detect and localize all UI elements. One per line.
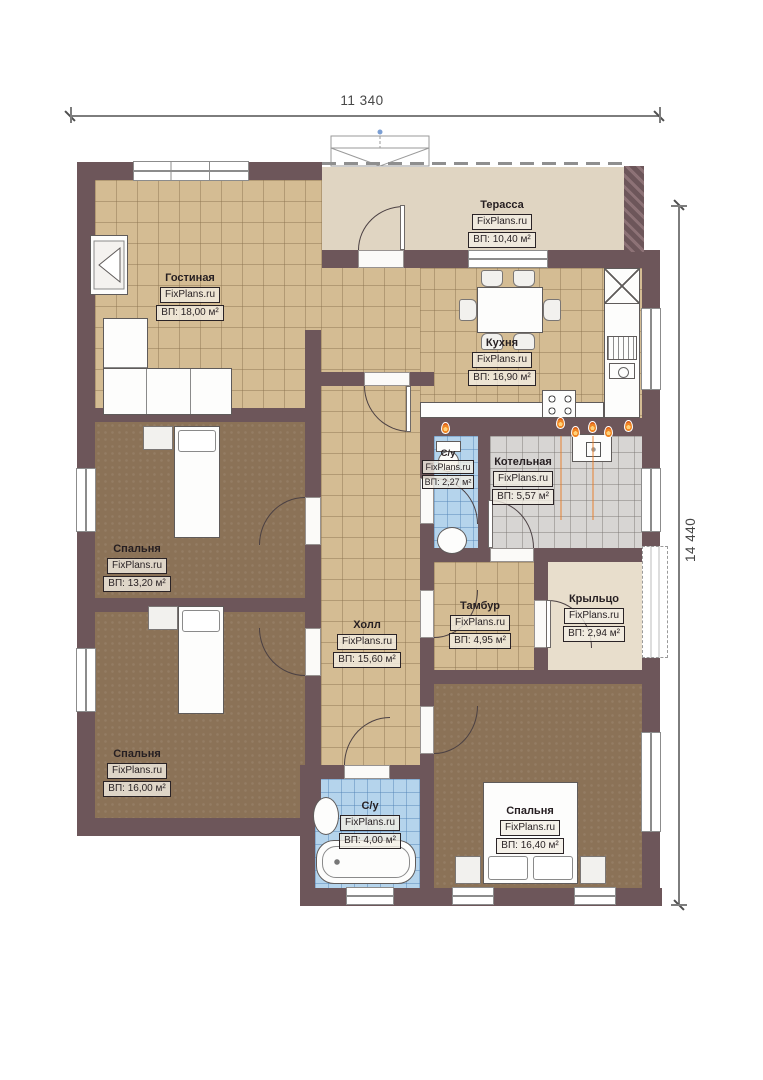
window <box>76 468 96 532</box>
brand-badge: FixPlans.ru <box>472 214 532 230</box>
stove <box>542 390 576 418</box>
wall-segment <box>534 548 642 562</box>
door-leaf <box>406 386 411 432</box>
doorway <box>420 590 434 638</box>
brand-badge: FixPlans.ru <box>493 471 553 487</box>
room-name: Гостиная <box>165 272 215 285</box>
wash-basin <box>437 527 467 554</box>
wall-segment <box>305 422 321 497</box>
wall-segment <box>77 818 315 836</box>
wall-segment <box>305 330 321 408</box>
room-name: Спальня <box>113 543 161 556</box>
room-label-bedroom2: Спальня FixPlans.ru ВП: 16,00 м² <box>98 748 176 797</box>
brand-badge: FixPlans.ru <box>340 815 400 831</box>
dimension-top-label: 11 340 <box>320 93 404 108</box>
pillow <box>182 610 220 632</box>
kitchen-counter <box>420 402 604 418</box>
gas-flame-icon <box>624 420 633 432</box>
brand-badge: FixPlans.ru <box>107 558 167 574</box>
room-area: ВП: 5,57 м² <box>492 489 554 505</box>
window <box>468 250 548 268</box>
gas-flame-icon <box>588 421 597 433</box>
wall-segment <box>534 562 548 600</box>
room-label-porch: Крыльцо FixPlans.ru ВП: 2,94 м² <box>558 593 630 642</box>
wall-segment <box>420 670 642 684</box>
room-label-terrace: Терасса FixPlans.ru ВП: 10,40 м² <box>460 199 544 248</box>
room-label-kitchen: Кухня FixPlans.ru ВП: 16,90 м² <box>460 337 544 386</box>
nightstand <box>148 606 178 630</box>
wall-segment <box>300 765 315 906</box>
vent-shaft <box>604 268 640 304</box>
room-area: ВП: 13,20 м² <box>103 576 170 592</box>
room-name: Котельная <box>494 456 552 469</box>
room-area: ВП: 16,00 м² <box>103 781 170 797</box>
room-area: ВП: 2,94 м² <box>563 626 625 642</box>
room-name: Крыльцо <box>569 593 619 606</box>
wall-segment <box>420 524 434 590</box>
room-name: Спальня <box>506 805 554 818</box>
gas-flame-icon <box>571 426 580 438</box>
gas-flame-icon <box>556 417 565 429</box>
fireplace <box>90 235 128 295</box>
window <box>133 161 249 181</box>
window <box>346 887 394 905</box>
room-name: Тамбур <box>460 600 500 613</box>
doorway <box>420 706 434 754</box>
brand-badge: FixPlans.ru <box>422 460 473 474</box>
room-name: С/у <box>361 800 378 813</box>
dimension-line-top <box>70 115 660 117</box>
doorway <box>358 250 404 268</box>
pillow <box>488 856 528 880</box>
doorway <box>364 372 410 386</box>
terrace-edge-dashed-line <box>322 162 624 165</box>
nightstand <box>455 856 481 884</box>
doorway <box>344 765 390 779</box>
wall-segment <box>410 372 434 386</box>
kitchen-sink <box>607 336 637 360</box>
brand-badge: FixPlans.ru <box>160 287 220 303</box>
room-area: ВП: 18,00 м² <box>156 305 223 321</box>
room-name: Кухня <box>486 337 518 350</box>
porch-steps <box>642 546 668 658</box>
room-label-bedroom1: Спальня FixPlans.ru ВП: 13,20 м² <box>98 543 176 592</box>
window <box>641 732 661 832</box>
wall-segment <box>315 765 344 779</box>
window <box>76 648 96 712</box>
chair <box>513 270 535 287</box>
door-leaf <box>546 600 551 648</box>
room-area: ВП: 16,40 м² <box>496 838 563 854</box>
room-area: ВП: 15,60 м² <box>333 652 400 668</box>
brand-badge: FixPlans.ru <box>450 615 510 631</box>
room-name: Холл <box>353 619 381 632</box>
nightstand <box>580 856 606 884</box>
room-label-living: Гостиная FixPlans.ru ВП: 18,00 м² <box>150 272 230 321</box>
window <box>641 308 661 390</box>
room-area: ВП: 10,40 м² <box>468 232 535 248</box>
wall-segment <box>534 648 548 670</box>
sofa <box>103 368 232 415</box>
chair <box>459 299 477 321</box>
room-label-tambour: Тамбур FixPlans.ru ВП: 4,95 м² <box>444 600 516 649</box>
dimension-line-right <box>678 205 680 905</box>
dimension-extension <box>671 904 687 906</box>
room-name: Терасса <box>480 199 524 212</box>
room-floor-hall-kitchen-opening <box>420 268 434 418</box>
room-name: С/у <box>441 448 456 459</box>
wall-segment <box>420 754 434 888</box>
pillow <box>178 430 216 452</box>
dimension-extension <box>659 107 661 123</box>
room-label-hall: Холл FixPlans.ru ВП: 15,60 м² <box>331 619 403 668</box>
room-area: ВП: 2,27 м² <box>422 475 475 489</box>
dimension-extension <box>671 205 687 207</box>
room-area: ВП: 4,00 м² <box>339 833 401 849</box>
dimension-extension <box>70 107 72 123</box>
window <box>574 887 616 905</box>
wall-hatched-segment <box>624 166 644 252</box>
dining-table <box>477 287 543 333</box>
wall-segment <box>390 765 420 779</box>
window <box>641 468 661 532</box>
chair <box>481 270 503 287</box>
wall-segment <box>305 372 364 386</box>
doorway <box>305 628 321 676</box>
room-name: Спальня <box>113 748 161 761</box>
gas-pipe <box>560 436 562 520</box>
window <box>452 887 494 905</box>
chair <box>543 299 561 321</box>
wall-segment <box>305 545 321 628</box>
doorway <box>490 548 534 562</box>
room-label-bathroom: С/у FixPlans.ru ВП: 4,00 м² <box>333 800 407 849</box>
brand-badge: FixPlans.ru <box>500 820 560 836</box>
brand-badge: FixPlans.ru <box>564 608 624 624</box>
pillow <box>533 856 573 880</box>
gas-pipe <box>592 436 594 520</box>
gas-flame-icon <box>604 426 613 438</box>
brand-badge: FixPlans.ru <box>107 763 167 779</box>
door-leaf <box>400 205 405 250</box>
fireplace-icon <box>91 236 127 294</box>
floor-plan-canvas: Терасса FixPlans.ru ВП: 10,40 м² Гостина… <box>0 0 763 1080</box>
room-area: ВП: 16,90 м² <box>468 370 535 386</box>
room-area: ВП: 4,95 м² <box>449 633 511 649</box>
kitchen-appliance <box>609 363 635 379</box>
room-label-boiler: Котельная FixPlans.ru ВП: 5,57 м² <box>488 456 558 505</box>
nightstand <box>143 426 173 450</box>
doorway <box>305 497 321 545</box>
door-leaf <box>488 500 493 548</box>
gas-flame-icon <box>441 422 450 434</box>
dimension-right-label: 14 440 <box>683 495 698 585</box>
brand-badge: FixPlans.ru <box>472 352 532 368</box>
room-label-bedroom3: Спальня FixPlans.ru ВП: 16,40 м² <box>490 805 570 854</box>
room-label-wc: С/у FixPlans.ru ВП: 2,27 м² <box>417 448 479 489</box>
brand-badge: FixPlans.ru <box>337 634 397 650</box>
